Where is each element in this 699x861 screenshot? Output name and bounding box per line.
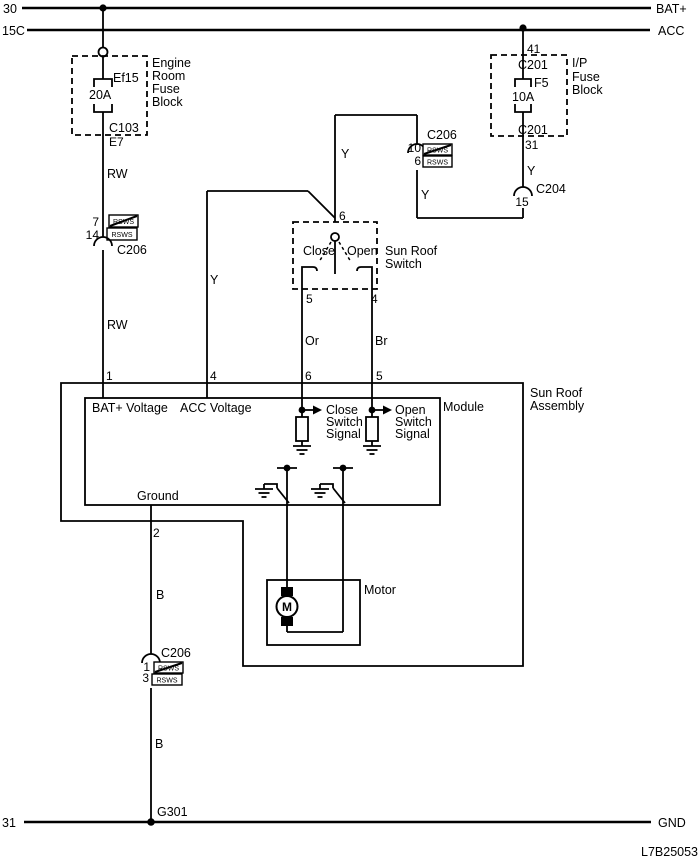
harness-code: RSWS (427, 160, 448, 167)
bus30-label: 30 (3, 2, 17, 16)
open-signal-line: Signal (395, 427, 430, 441)
pin-label: 15 (515, 195, 529, 209)
block-name-line: Block (572, 83, 603, 97)
connector-label: C206 (117, 243, 147, 257)
block-name-line: Block (152, 95, 183, 109)
connector-label: C201 (518, 58, 548, 72)
pin-label: 5 (376, 369, 383, 383)
wire-color-label: RW (107, 167, 128, 181)
pin-label: 6 (414, 154, 421, 168)
motor-label: Motor (364, 583, 396, 597)
acc-voltage-label: ACC Voltage (180, 401, 252, 415)
motor-letter: M (282, 600, 292, 614)
connector-label: C206 (161, 646, 191, 660)
wire-color-label: RW (107, 318, 128, 332)
switch-name-line: Sun Roof (385, 244, 438, 258)
bat-voltage-label: BAT+ Voltage (92, 401, 168, 415)
fuse-name-label: F5 (534, 76, 549, 90)
diagram-code: L7B25053 (641, 845, 698, 859)
pin-label: 31 (525, 138, 539, 152)
pin-label: E7 (109, 135, 124, 149)
pin-label: 3 (142, 671, 149, 685)
pin-label: 7 (92, 215, 99, 229)
pin-label: 41 (527, 42, 541, 56)
fuse-rating-label: 20A (89, 88, 112, 102)
switch-close-label: Close (303, 244, 335, 258)
switch-open-label: Open (347, 244, 378, 258)
wire-color-label: Y (341, 147, 350, 161)
pin-label: 2 (153, 526, 160, 540)
sunroof-wiring-diagram: 30 BAT+ 15C ACC 31 GND G301 Ef15 20A C10… (0, 0, 699, 861)
wire-color-label: Y (210, 273, 219, 287)
wire-color-label: Or (305, 334, 319, 348)
wire-color-label: Br (375, 334, 388, 348)
ground-label: Ground (137, 489, 179, 503)
ground-point-label: G301 (157, 805, 188, 819)
switch-pivot-icon (331, 233, 339, 241)
connector-label: C204 (536, 182, 566, 196)
wire-color-label: Y (421, 188, 430, 202)
module-label: Module (443, 400, 484, 414)
pin-label: 10 (408, 141, 422, 155)
assembly-name-line: Assembly (530, 399, 585, 413)
block-name-line: Fuse (572, 70, 600, 84)
pin-label: 4 (210, 369, 217, 383)
block-name-line: Engine (152, 56, 191, 70)
close-signal-line: Signal (326, 427, 361, 441)
fuse-rating-label: 10A (512, 90, 535, 104)
harness-code: RSWS (112, 232, 133, 239)
pin-label: 6 (339, 209, 346, 223)
connector-label: C206 (427, 128, 457, 142)
block-name-line: I/P (572, 56, 587, 70)
block-name-line: Room (152, 69, 185, 83)
pin-label: 5 (306, 292, 313, 306)
connector-label: C103 (109, 121, 139, 135)
bat-label: BAT+ (656, 2, 687, 16)
wire-color-label: B (155, 737, 163, 751)
harness-code: RSWS (157, 678, 178, 685)
wire-color-label: Y (527, 164, 536, 178)
fuse-name-label: Ef15 (113, 71, 139, 85)
pin-label: 1 (106, 369, 113, 383)
pin-label: 6 (305, 369, 312, 383)
block-name-line: Fuse (152, 82, 180, 96)
gnd-label: GND (658, 816, 686, 830)
switch-name-line: Switch (385, 257, 422, 271)
assembly-name-line: Sun Roof (530, 386, 583, 400)
acc-label: ACC (658, 24, 684, 38)
bus15c-label: 15C (2, 24, 25, 38)
wire-color-label: B (156, 588, 164, 602)
bus31-label: 31 (2, 816, 16, 830)
wiring-diagram-page: 30 BAT+ 15C ACC 31 GND G301 Ef15 20A C10… (0, 0, 699, 861)
